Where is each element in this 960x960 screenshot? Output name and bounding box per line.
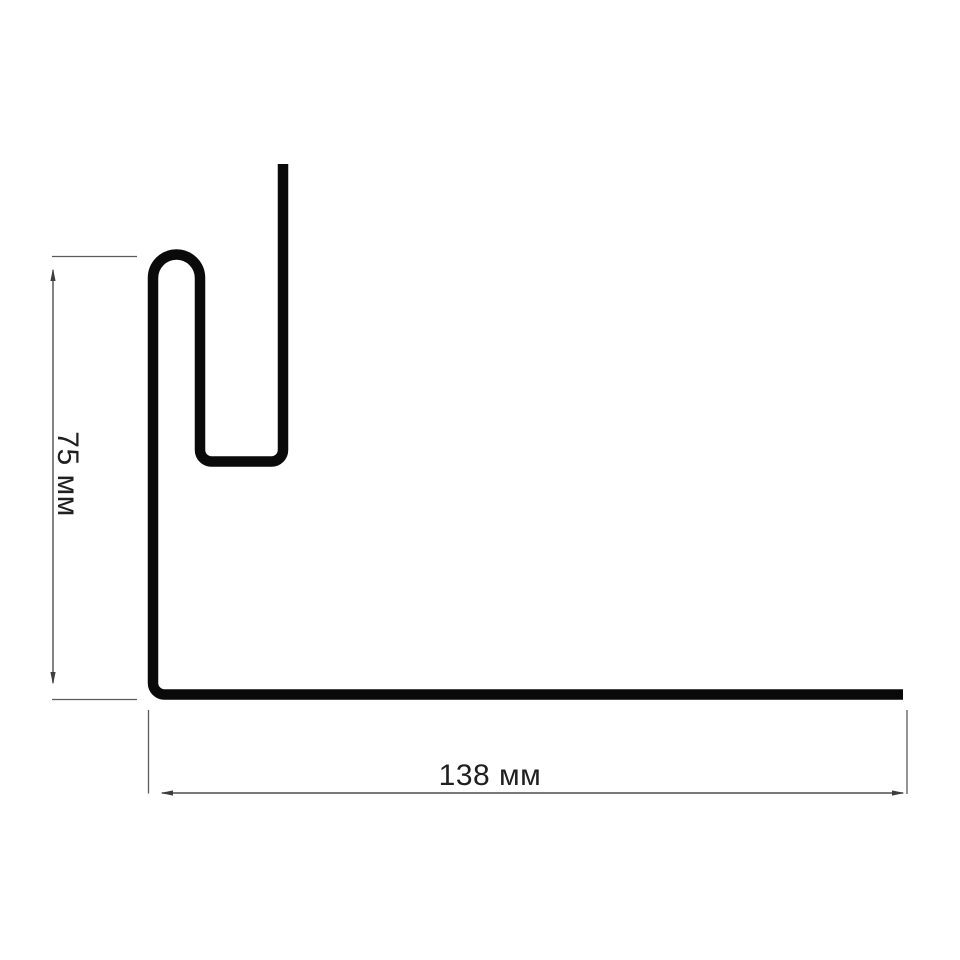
height-dimension-label: 75 мм [51,431,84,516]
profile-diagram: 75 мм 138 мм [0,0,960,960]
height-arrow-down-icon [50,672,55,685]
height-arrow-up-icon [50,269,55,282]
height-dimension: 75 мм [50,257,137,700]
profile-outline [153,164,903,695]
width-arrow-right-icon [892,790,905,795]
width-dimension: 138 мм [149,710,908,796]
width-arrow-left-icon [161,790,174,795]
diagram-canvas: 75 мм 138 мм [0,0,960,960]
width-dimension-label: 138 мм [439,759,542,792]
